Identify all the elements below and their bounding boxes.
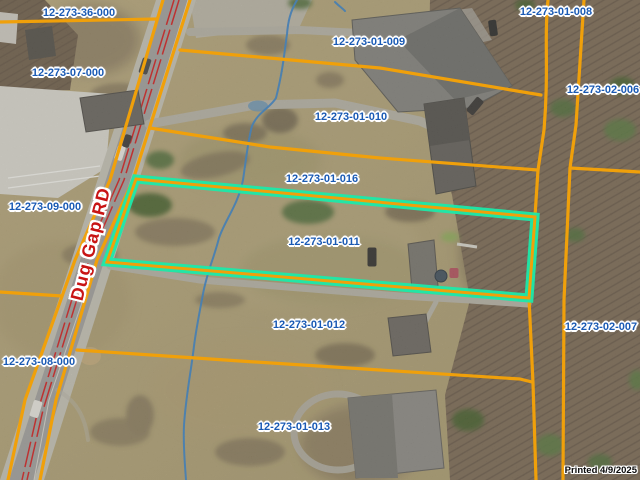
aerial-basemap	[0, 0, 640, 480]
gis-map-canvas[interactable]: Dug Gap RD Printed 4/9/2025 12-273-36-00…	[0, 0, 640, 480]
photo-grain-light	[0, 0, 640, 480]
